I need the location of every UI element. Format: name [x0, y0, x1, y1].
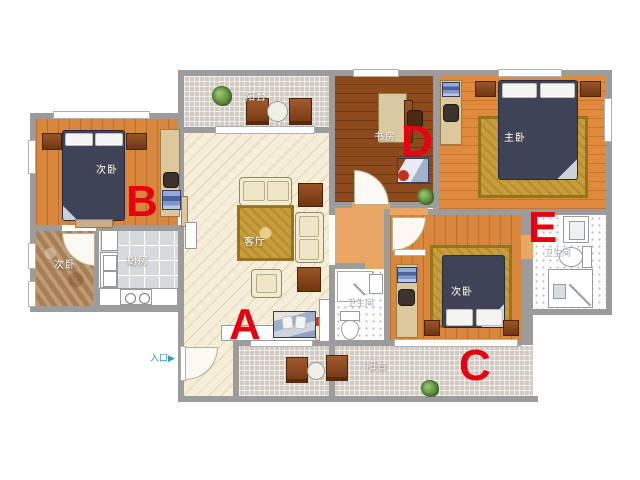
wall [335, 263, 365, 269]
nightstand [126, 133, 147, 150]
wall [178, 396, 538, 402]
balcony-top-label: 阳台 [245, 93, 267, 103]
kitchen-cabinet [101, 230, 118, 251]
window [394, 339, 518, 347]
sink-basin [569, 221, 585, 240]
entrance-text: 入口 [150, 354, 168, 364]
bathroom-left-label: 卫生间 [347, 300, 374, 309]
plant-icon [421, 380, 439, 397]
wall [428, 209, 612, 215]
wall [384, 209, 390, 345]
kitchen-label: 厨房 [127, 257, 149, 267]
photo-marker-b [162, 190, 181, 210]
photo-marker-a [273, 311, 316, 338]
master-desk-chair [443, 104, 459, 122]
shower-stall [548, 269, 593, 308]
photo-pillow-detail [294, 315, 306, 329]
balcony-table [267, 101, 288, 122]
window [498, 69, 562, 77]
wall [521, 259, 533, 345]
sofa-cushion [299, 239, 319, 260]
armchair-cushion [256, 274, 277, 293]
chair [398, 289, 415, 306]
burner-icon [139, 293, 150, 304]
pillow [502, 83, 537, 98]
marker-letter-c: C [459, 344, 491, 388]
window [28, 243, 36, 269]
balcony-chair [289, 98, 312, 125]
side-cabinet [319, 299, 330, 342]
bedroom-b-label: 次卧 [96, 166, 118, 176]
sofa-cushion [267, 181, 289, 201]
living-room-rug [237, 205, 294, 261]
floor-plan: 阳台 客厅 A 入口▶ 次卧 B 次卧 [0, 0, 640, 480]
toilet-tank [582, 246, 592, 268]
window [53, 111, 150, 119]
end-table [298, 183, 323, 207]
wall [533, 309, 612, 315]
shower-tray [553, 284, 566, 299]
armchair [251, 269, 282, 298]
pillow [95, 133, 123, 146]
plant-icon [417, 188, 434, 205]
wall [315, 127, 329, 133]
master-bed [498, 80, 578, 180]
sofa [239, 177, 292, 206]
wall [433, 76, 439, 209]
nightstand [475, 81, 496, 97]
marker-letter-d: D [401, 120, 433, 164]
wall [30, 225, 62, 231]
pillow [540, 83, 575, 98]
window [353, 69, 399, 77]
fridge [185, 222, 197, 249]
marker-letter-e: E [528, 206, 557, 250]
sofa [295, 212, 324, 263]
balcony-bottom-label: 阳台 [366, 362, 388, 372]
nightstand [580, 81, 601, 97]
bathroom-sink [369, 274, 383, 294]
wall [329, 76, 335, 215]
marker-letter-a: A [229, 303, 261, 347]
sofa-cushion [299, 216, 319, 237]
nightstand [503, 320, 519, 336]
wall [335, 202, 352, 208]
pillow [65, 133, 93, 146]
wall [233, 340, 239, 402]
window [604, 98, 612, 142]
pillow [476, 309, 503, 326]
balcony-chair [326, 355, 348, 381]
entrance-arrow-icon: ▶ [168, 354, 175, 364]
kitchen-sink [100, 252, 118, 288]
toilet-bowl [341, 320, 359, 340]
balcony-table [307, 362, 325, 380]
photo-marker-master [442, 82, 460, 97]
photo-marker-c [397, 267, 417, 283]
balcony-chair [286, 357, 308, 383]
toilet [340, 311, 360, 339]
marker-letter-b: B [126, 180, 158, 224]
pillow [446, 309, 473, 326]
hallway-floor [335, 215, 384, 269]
desk-chair [163, 172, 179, 188]
living-room-label: 客厅 [244, 238, 266, 248]
sink-basin [103, 271, 117, 287]
study-label: 书房 [374, 133, 396, 143]
burner-icon [125, 293, 136, 304]
bedroom-c-label: 次卧 [451, 288, 473, 298]
bathroom-sink [563, 216, 589, 243]
shower-door-line [569, 284, 592, 307]
plant-icon [212, 86, 232, 106]
wall [184, 127, 215, 133]
sink-basin [103, 255, 117, 271]
photo-pillow-detail [281, 315, 294, 329]
entrance-door-leaf [180, 346, 186, 381]
bedroom-c-door-leaf [394, 249, 426, 256]
nightstand [42, 133, 62, 150]
master-label: 主卧 [504, 134, 526, 144]
window [28, 140, 36, 174]
end-table [297, 267, 321, 292]
nightstand [424, 320, 440, 336]
wall [30, 306, 184, 312]
window [28, 281, 36, 307]
window [215, 126, 315, 134]
bedroom-small-label: 次卧 [54, 261, 76, 271]
sofa-cushion [243, 181, 265, 201]
stove [120, 289, 152, 305]
entrance-label: 入口▶ [150, 355, 175, 364]
bed-bench [75, 219, 113, 228]
